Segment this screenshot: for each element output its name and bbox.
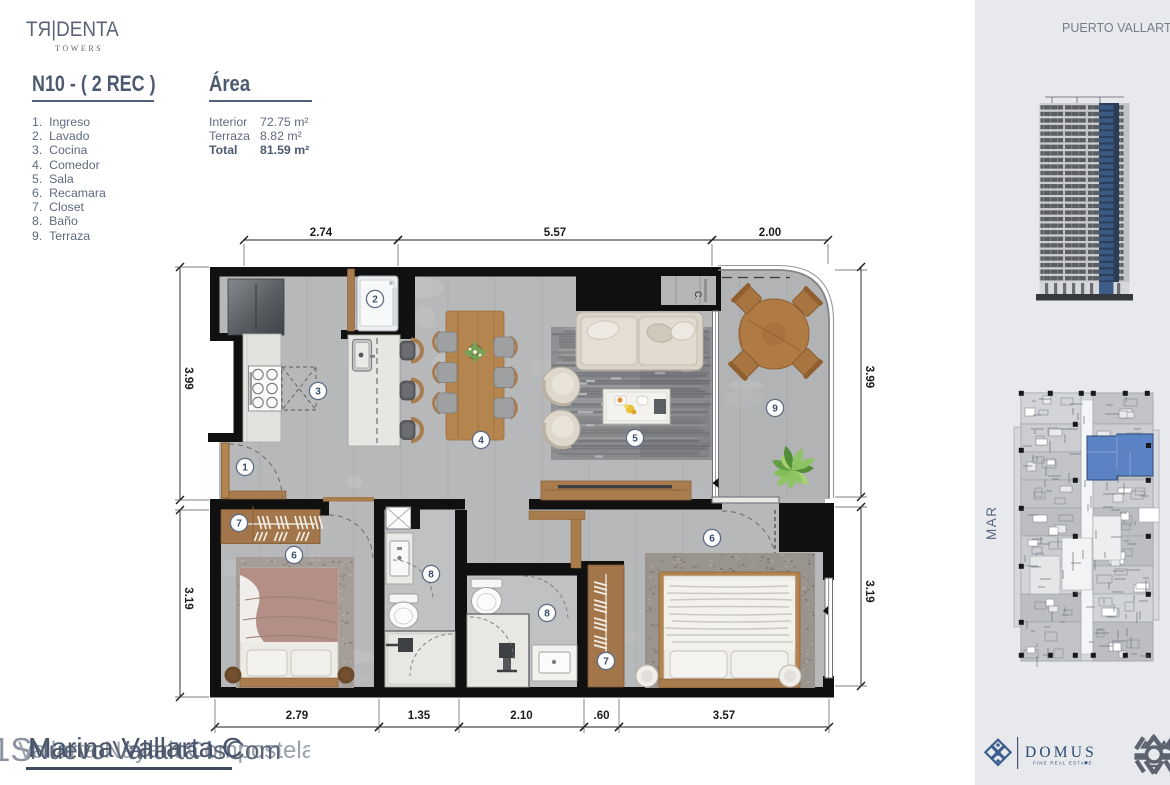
svg-text:5: 5 [632, 434, 638, 445]
svg-text:1.35: 1.35 [408, 710, 431, 722]
svg-text:3.19: 3.19 [182, 587, 194, 609]
svg-text:2.79: 2.79 [286, 710, 308, 722]
svg-text:6: 6 [291, 551, 297, 562]
svg-text:C.: C. [693, 291, 703, 300]
svg-text:8: 8 [544, 609, 550, 620]
svg-text:DOMUS: DOMUS [1025, 744, 1097, 761]
svg-text:3.99: 3.99 [863, 366, 875, 388]
svg-text:2.74: 2.74 [310, 227, 333, 239]
svg-text:2.00: 2.00 [759, 227, 781, 239]
svg-text:4: 4 [478, 436, 484, 447]
svg-text:3: 3 [315, 387, 321, 398]
svg-text:FINE REAL ESTATE: FINE REAL ESTATE [1033, 761, 1093, 766]
svg-text:9: 9 [772, 404, 778, 415]
svg-text:3.57: 3.57 [713, 710, 735, 722]
svg-text:3.99: 3.99 [182, 367, 194, 389]
svg-text:6: 6 [709, 534, 715, 545]
svg-text:5.57: 5.57 [544, 227, 566, 239]
svg-text:2.10: 2.10 [510, 710, 532, 722]
svg-text:8: 8 [428, 570, 434, 581]
svg-text:MAR: MAR [984, 506, 999, 541]
svg-text:2: 2 [372, 295, 378, 306]
svg-text:1: 1 [242, 463, 248, 474]
svg-text:3.19: 3.19 [863, 580, 875, 602]
svg-text:7: 7 [236, 519, 242, 530]
svg-text:.60: .60 [594, 710, 610, 722]
svg-text:7: 7 [603, 657, 609, 668]
